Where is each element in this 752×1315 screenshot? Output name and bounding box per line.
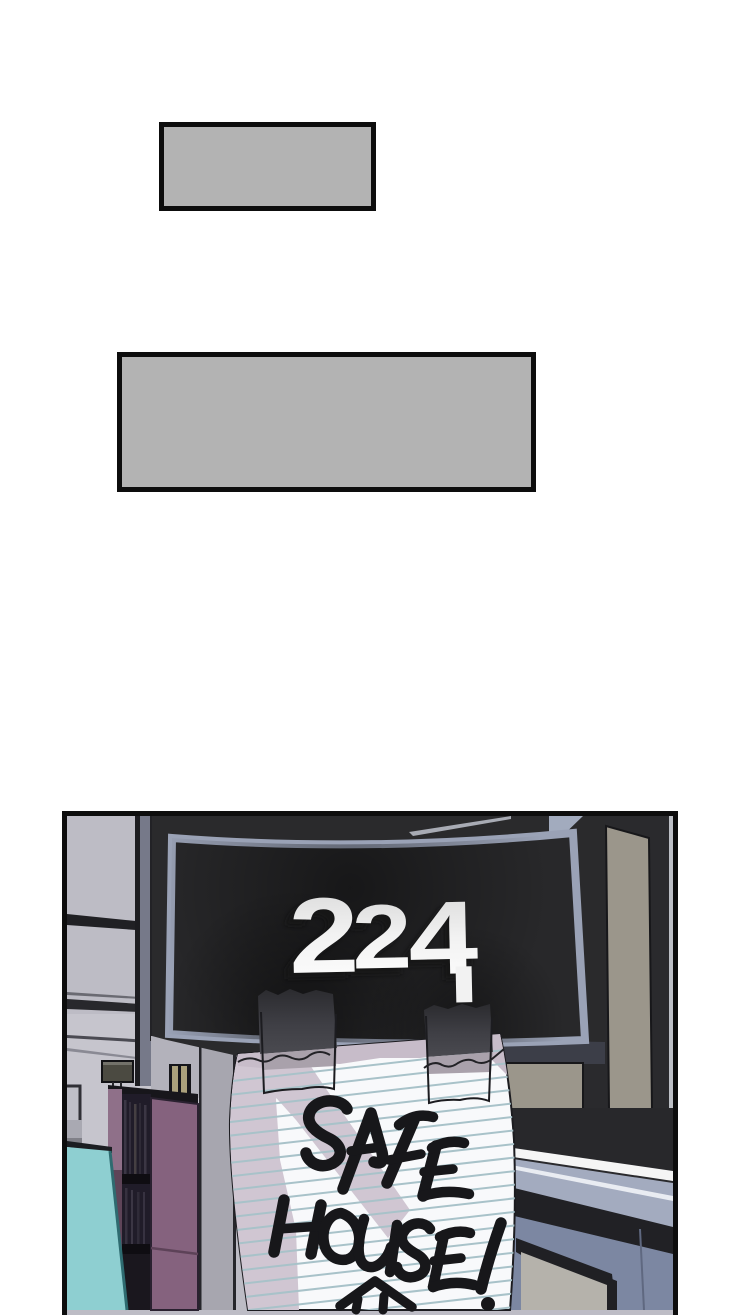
svg-text:2: 2 (287, 875, 360, 996)
svg-text:2: 2 (351, 886, 413, 989)
